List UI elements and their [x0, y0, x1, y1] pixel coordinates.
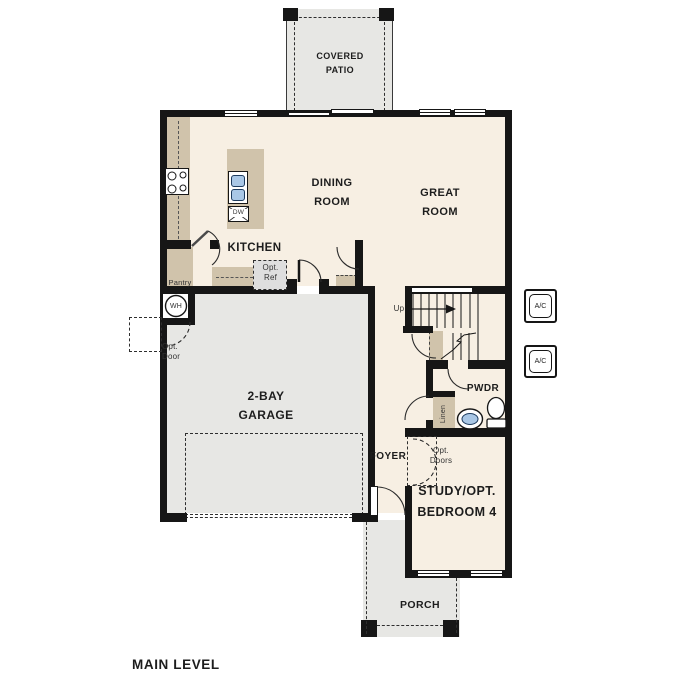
patio-post: [283, 8, 298, 21]
ac-unit-bottom-label: A/C: [529, 350, 552, 373]
porch-dash-left: [366, 522, 367, 634]
wall-wh-right: [188, 294, 195, 320]
porch-post: [361, 620, 377, 637]
window-kitchen: [224, 110, 258, 117]
dining-room-label: DINING ROOM: [287, 174, 377, 211]
hall-counter-dash: [216, 277, 253, 278]
wall-understair-bottom-right: [468, 360, 512, 369]
window-great-room: [419, 109, 451, 116]
pantry-label: Pantry: [163, 278, 197, 288]
wall-garage-top-right: [319, 286, 375, 294]
garage-label: 2-BAY GARAGE: [216, 387, 316, 424]
front-door-leaf: [370, 486, 378, 516]
covered-patio-label: COVERED PATIO: [294, 50, 386, 78]
ac-unit-top: A/C: [524, 289, 557, 323]
ac-unit-bottom: A/C: [524, 345, 557, 378]
window-study: [417, 570, 450, 577]
stair-landing-opening: [411, 287, 473, 293]
wall-stair-mid: [403, 326, 433, 333]
wall-garage-bottom-stub: [160, 513, 187, 522]
sink-basin: [231, 175, 245, 187]
opt-door-box: [129, 317, 162, 352]
wall-garage-foyer: [368, 286, 375, 513]
opt-door-label: Opt. Door: [162, 342, 202, 363]
garage-door-dashed-line: [185, 517, 352, 518]
porch-dash-bottom: [377, 625, 443, 626]
wall-understair-bottom-left: [426, 360, 448, 369]
wall-coat-closet: [355, 240, 363, 290]
linen-label: Linen: [434, 392, 454, 436]
wall-wh-bottom: [160, 318, 195, 325]
cooktop: [165, 168, 189, 195]
main-level-title: MAIN LEVEL: [132, 654, 252, 676]
foyer-label: FOYER: [352, 449, 424, 465]
wall-door-jamb: [287, 279, 297, 294]
window-study: [470, 570, 503, 577]
wall-linen-left-upper: [426, 369, 433, 398]
up-label: Up: [391, 304, 407, 314]
window-great-room: [454, 109, 486, 116]
floorplan-main-level: A/C A/C: [0, 0, 687, 687]
great-room-label: GREAT ROOM: [395, 184, 485, 221]
dishwasher-label: DW: [229, 209, 248, 217]
understair-strip: [429, 331, 443, 361]
sink-basin: [231, 189, 245, 201]
powder-label: PWDR: [448, 381, 518, 397]
slider-door-panel: [288, 112, 330, 116]
porch-label: PORCH: [379, 597, 461, 614]
slider-door-panel: [331, 109, 374, 114]
opt-doors-label: Opt. Doors: [419, 446, 463, 467]
opt-ref-label: Opt. Ref: [255, 263, 286, 284]
kitchen-label: KITCHEN: [207, 239, 302, 257]
patio-post: [379, 8, 394, 21]
water-heater-label: WH: [167, 302, 185, 311]
ac-unit-top-label: A/C: [529, 294, 552, 318]
garage-door-outline: [185, 433, 363, 515]
study-label: STUDY/OPT. BEDROOM 4: [398, 481, 516, 524]
wall-kitchen-stub: [160, 240, 191, 249]
